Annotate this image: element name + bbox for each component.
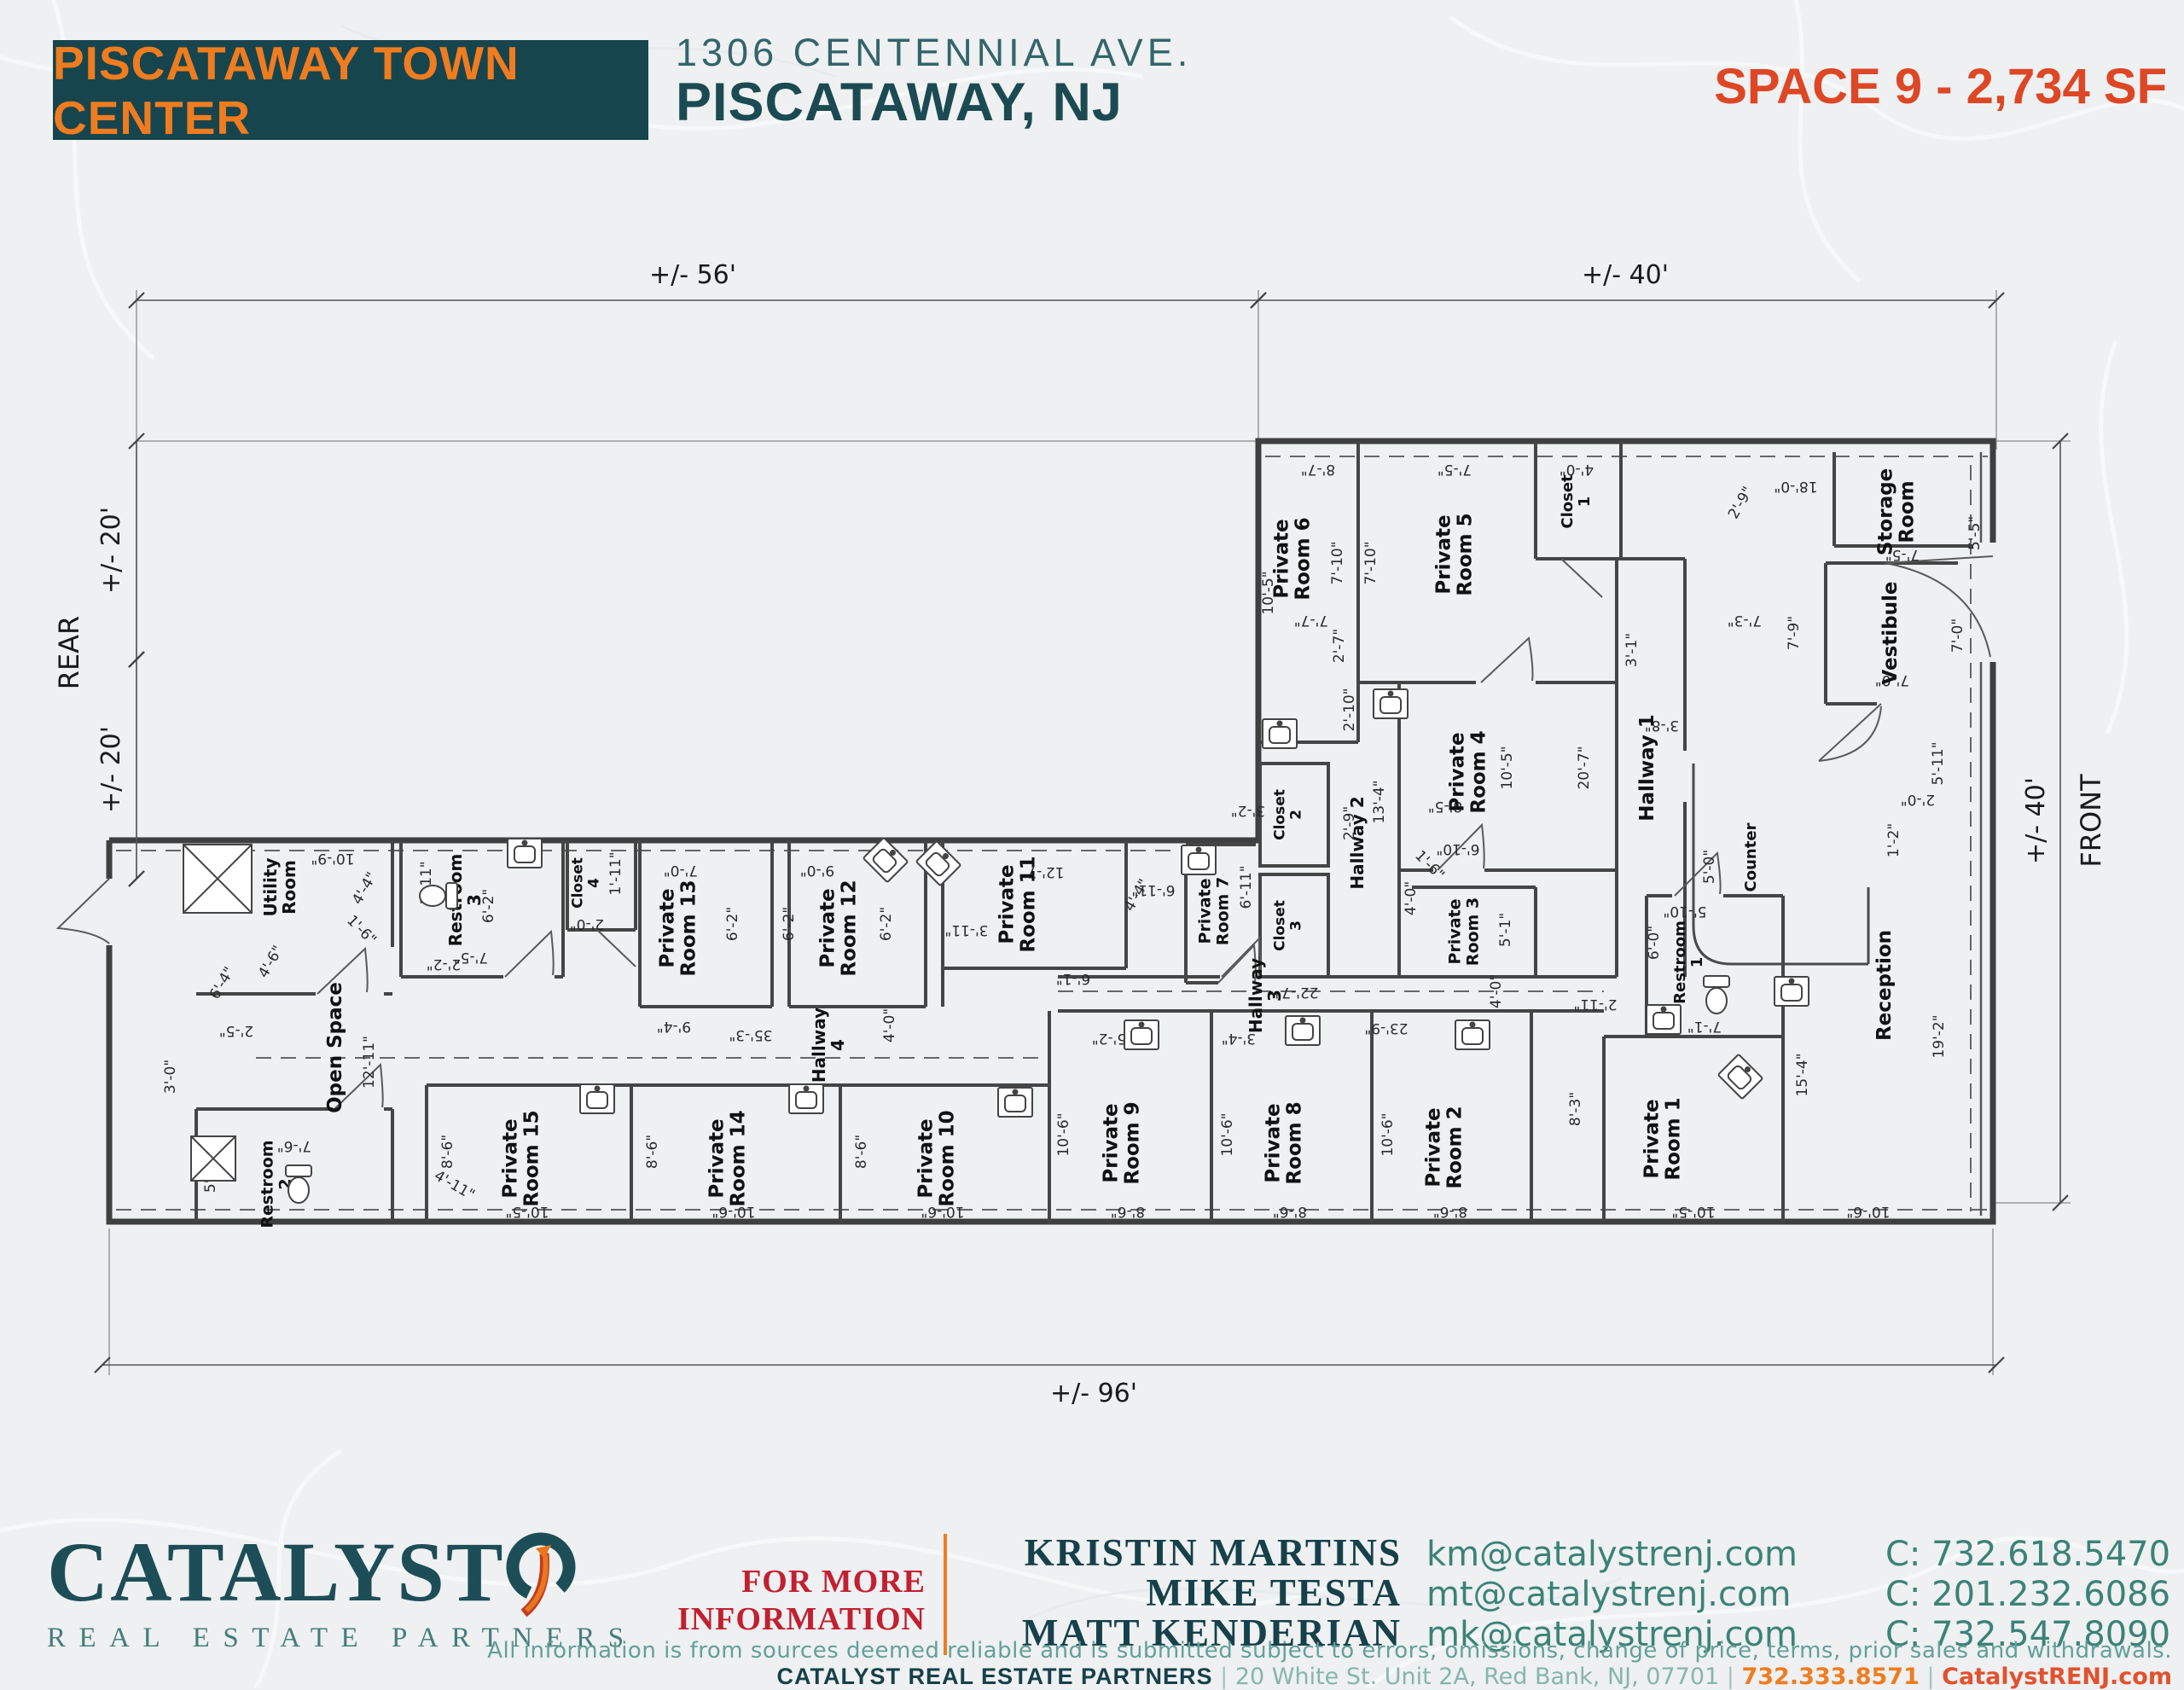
- agent-name-list: KRISTIN MARTINS MIKE TESTA MATT KENDERIA…: [960, 1533, 1402, 1653]
- dimension-label: 6'-4": [206, 964, 238, 1002]
- dimension-label: 2'-5": [219, 1022, 253, 1039]
- company-phone: 732.333.8571: [1741, 1664, 1919, 1690]
- dimension-label: 3'-1": [1623, 633, 1641, 667]
- agent-email[interactable]: mt@catalystrenj.com: [1426, 1575, 1798, 1615]
- room-label: Hallway3: [1246, 958, 1285, 1033]
- dimension-label: 10'-6": [1055, 1112, 1072, 1156]
- orientation-label: REAR: [53, 616, 85, 690]
- room-label: PrivateRoom 12: [816, 880, 860, 976]
- logo-wordmark: CATALYST: [47, 1530, 505, 1615]
- room-label: PrivateRoom 9: [1100, 1101, 1143, 1184]
- shower-fixture-icon: [191, 1136, 235, 1181]
- main-dimension-label: +/- 20': [96, 726, 126, 813]
- dimension-label: 7'-6": [277, 1137, 311, 1154]
- dimension-label: 18'-0": [1774, 478, 1817, 495]
- room-label: Hallway 2: [1347, 796, 1368, 889]
- dimension-label: 3'-11": [944, 921, 988, 938]
- agent-name: MIKE TESTA: [960, 1573, 1402, 1613]
- toilet-fixture-icon: [286, 1165, 311, 1203]
- dimension-label: 9'-4": [657, 1018, 691, 1035]
- city-state: PISCATAWAY, NJ: [676, 74, 1192, 131]
- room-label: PrivateRoom 5: [1432, 513, 1476, 595]
- sink-fixture-icon: [1718, 1054, 1763, 1099]
- dimension-label: 7'-0": [1949, 619, 1966, 653]
- shower-fixture-icon: [183, 845, 252, 913]
- toilet-fixture-icon: [420, 883, 457, 909]
- dimension-label: 20'-7": [1576, 746, 1593, 789]
- dimension-label: 5'-1": [1497, 913, 1514, 947]
- dimension-label: 5'-10": [1663, 903, 1706, 920]
- dimension-label: 10'-5": [1499, 746, 1516, 789]
- flyer-page: { "header": { "badge": "PISCATAWAY TOWN …: [0, 0, 2184, 1687]
- sink-fixture-icon: [916, 841, 961, 886]
- dimension-label: 2'-9": [1725, 484, 1757, 522]
- company-name: CATALYST REAL ESTATE PARTNERS: [776, 1664, 1212, 1689]
- dimension-label: 15'-4": [1794, 1053, 1811, 1096]
- company-logo: CATALYST REAL ESTATE PARTNERS: [47, 1530, 637, 1654]
- room-label: Hallway 1: [1636, 714, 1658, 822]
- dimension-label: 12'-11": [361, 1036, 378, 1089]
- room-label: Hallway4: [809, 1008, 848, 1083]
- room-label: Reception: [1873, 930, 1896, 1041]
- sink-fixture-icon: [863, 838, 908, 882]
- agent-name: KRISTIN MARTINS: [960, 1533, 1402, 1573]
- room-label: PrivateRoom 2: [1422, 1106, 1466, 1188]
- room-label: Closet1: [1559, 474, 1594, 529]
- dimension-label: 4'-6": [255, 943, 287, 981]
- dimension-label: 3'-0": [162, 1060, 179, 1094]
- floor-plan: +/- 56'+/- 40'+/- 20'+/- 20'+/- 40'+/- 9…: [0, 205, 2184, 1501]
- dimension-label: 8'-6": [1273, 1203, 1307, 1220]
- dimension-label: 19'-2": [1931, 1014, 1948, 1058]
- dimension-label: 7'-10": [1329, 541, 1346, 584]
- dimension-label: 6'-1": [1056, 970, 1090, 987]
- agent-phone: C: 732.618.5470: [1885, 1535, 2170, 1575]
- dimension-label: 2'-7": [1331, 629, 1348, 663]
- dimension-label: 5'-2": [1092, 1030, 1126, 1047]
- dimension-label: 6'-0": [1646, 926, 1663, 960]
- room-label: UtilityRoom: [260, 858, 299, 917]
- dimension-label: 10'-6": [1380, 1112, 1397, 1156]
- room-label: PrivateRoom 6: [1270, 517, 1314, 600]
- room-label: PrivateRoom 13: [656, 880, 700, 976]
- dimension-label: 7'-5": [454, 949, 488, 966]
- orientation-label: FRONT: [2075, 774, 2107, 868]
- property-name-badge: PISCATAWAY TOWN CENTER: [53, 40, 648, 140]
- dimension-label: 2'-0": [1901, 791, 1935, 808]
- plan-interior-walls: [196, 441, 1993, 1222]
- plan-dashed-lines: [116, 456, 1988, 1211]
- sink-fixture-icon: [1182, 845, 1216, 874]
- agent-phone: C: 201.232.6086: [1885, 1575, 2170, 1615]
- floor-plan-drawing: +/- 56'+/- 40'+/- 20'+/- 20'+/- 40'+/- 9…: [0, 205, 2184, 1501]
- room-label: Closet3: [1272, 900, 1305, 951]
- property-name: PISCATAWAY TOWN CENTER: [53, 36, 648, 145]
- main-dimension-label: +/- 56': [649, 260, 736, 290]
- dimension-label: 1'-6": [343, 912, 380, 949]
- dimension-label: 2'-11": [1573, 996, 1617, 1013]
- dimension-label: 7'-10": [1362, 541, 1380, 584]
- dimension-label: 2'-10": [1341, 688, 1358, 731]
- main-dimension-label: +/- 40': [2021, 777, 2051, 864]
- sink-fixture-icon: [1124, 1020, 1159, 1049]
- dimension-label: 5'-5": [1966, 516, 1984, 550]
- agent-email[interactable]: km@catalystrenj.com: [1426, 1535, 1798, 1575]
- agent-phone-list: C: 732.618.5470 C: 201.232.6086 C: 732.5…: [1885, 1535, 2170, 1655]
- sink-fixture-icon: [1455, 1020, 1490, 1049]
- street-address: 1306 CENTENNIAL AVE.: [676, 32, 1192, 73]
- company-website[interactable]: CatalystRENJ.com: [1942, 1664, 2172, 1690]
- map-pin-icon: [498, 1530, 584, 1623]
- dimension-label: 6'-11": [1238, 865, 1255, 909]
- room-label: PrivateRoom 8: [1262, 1101, 1305, 1184]
- sink-fixture-icon: [508, 839, 542, 868]
- room-label: PrivateRoom 15: [499, 1110, 543, 1206]
- room-label: PrivateRoom 14: [706, 1110, 749, 1206]
- dimension-label: 7'-9": [1786, 616, 1803, 650]
- dimension-label: 23'-9": [1364, 1019, 1408, 1037]
- reception-counter: [1693, 764, 1868, 964]
- dimension-label: 7'-0": [664, 862, 698, 879]
- dimension-label: 4'-0": [881, 1008, 898, 1042]
- room-label: Vestibule: [1879, 581, 1902, 684]
- dimension-label: 4'-0": [1488, 974, 1505, 1008]
- sink-fixture-icon: [1263, 719, 1297, 748]
- room-label: Restroom1: [1671, 920, 1706, 1004]
- main-dimension-label: +/- 96': [1050, 1379, 1137, 1408]
- dimension-label: 10'-6": [1846, 1203, 1890, 1220]
- main-dimension-label: +/- 40': [1582, 260, 1669, 290]
- room-label: StorageRoom: [1874, 468, 1918, 555]
- dimension-label: 10'-6": [1219, 1112, 1236, 1156]
- dimension-label: 8'-6": [1433, 1203, 1467, 1220]
- dimension-label: 1'-11": [607, 851, 624, 895]
- sink-fixture-icon: [1647, 1005, 1681, 1034]
- room-label: PrivateRoom 1: [1641, 1097, 1684, 1180]
- dimension-label: 5'-0": [1701, 850, 1718, 884]
- dimension-label: 8'-6": [1111, 1203, 1145, 1220]
- room-label: PrivateRoom 3: [1446, 897, 1483, 966]
- address-block: 1306 CENTENNIAL AVE. PISCATAWAY, NJ: [676, 32, 1192, 131]
- plan-extension-lines: [109, 290, 2071, 1375]
- room-label: Counter: [1742, 822, 1760, 891]
- room-label: Open Space: [324, 982, 346, 1113]
- dimension-label: 4'-0": [1403, 881, 1420, 915]
- dimension-label: 9'-0": [800, 862, 834, 879]
- sink-fixture-icon: [998, 1088, 1032, 1117]
- room-label: Closet2: [1272, 789, 1305, 840]
- room-label: Closet4: [570, 857, 603, 909]
- dimension-label: 6'-2": [878, 907, 895, 941]
- sink-fixture-icon: [580, 1084, 614, 1113]
- dimension-label: 35'-3": [729, 1026, 772, 1043]
- company-contact-line: CATALYST REAL ESTATE PARTNERS | 20 White…: [776, 1664, 2172, 1690]
- dimension-label: 6'-10": [1436, 840, 1479, 857]
- dimension-label: 4'-11": [431, 1167, 477, 1204]
- dimension-label: 10'-9": [311, 850, 354, 867]
- sink-fixture-icon: [789, 1084, 823, 1113]
- dimension-label: 2'-0": [570, 915, 604, 932]
- room-label: PrivateRoom 11: [996, 856, 1039, 952]
- main-dimension-label: +/- 20': [96, 507, 126, 594]
- main-dimension-layer: +/- 56'+/- 40'+/- 20'+/- 20'+/- 40'+/- 9…: [53, 260, 2107, 1408]
- dimension-label: 8'-6": [439, 1135, 456, 1169]
- agent-email-list: km@catalystrenj.com mt@catalystrenj.com …: [1426, 1535, 1798, 1655]
- dimension-label: 7'-5": [1438, 461, 1472, 478]
- dimension-label: 8'-7": [1301, 461, 1335, 478]
- disclaimer-text: All information is from sources deemed r…: [487, 1638, 2172, 1664]
- dimension-label: 3'-2": [1231, 802, 1265, 819]
- company-address: 20 White St. Unit 2A, Red Bank, NJ, 0770…: [1235, 1664, 1719, 1690]
- room-label: PrivateRoom 7: [1196, 877, 1233, 945]
- room-label: PrivateRoom 4: [1446, 730, 1490, 813]
- dimension-label: 4'-4": [349, 869, 380, 908]
- dimension-label: 7'-1": [1687, 1018, 1722, 1035]
- dimension-label: 6'-2": [781, 907, 798, 941]
- dimension-label: 6'-2": [724, 907, 741, 941]
- dimension-label: 7'-7": [1294, 612, 1328, 629]
- sink-fixture-icon: [1774, 977, 1809, 1006]
- dimension-label: 8'-6": [853, 1135, 870, 1169]
- space-size-label: SPACE 9 - 2,734 SF: [1714, 58, 2167, 115]
- dimension-label: 10'-5": [1671, 1203, 1715, 1220]
- dimension-label: 1'-2": [1885, 823, 1902, 857]
- dimension-label: 5'-11": [1930, 741, 1947, 785]
- toilet-fixture-icon: [1704, 976, 1729, 1013]
- footer-divider-line: [944, 1534, 947, 1655]
- dimension-label: 8'-3": [1567, 1092, 1584, 1126]
- sink-fixture-icon: [1286, 1016, 1320, 1045]
- dimension-label: 13'-4": [1371, 780, 1388, 823]
- dimension-label: 8'-6": [644, 1135, 661, 1169]
- for-more-information-label: FOR MORE INFORMATION: [636, 1564, 926, 1638]
- dimension-label: 7'-3": [1728, 612, 1762, 629]
- room-label: PrivateRoom 10: [915, 1110, 958, 1206]
- sink-fixture-icon: [1374, 689, 1408, 718]
